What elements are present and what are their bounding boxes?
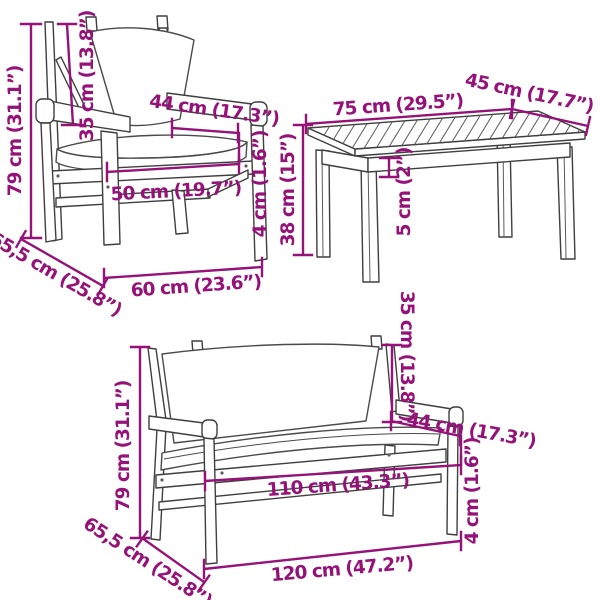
bench-screw bbox=[387, 453, 390, 456]
armchair-drawing bbox=[36, 16, 267, 261]
diagram-canvas: 79 cm (31.1”) 35 cm (13.8”) 44 cm (17.3”… bbox=[0, 0, 600, 600]
coffee-table-drawing bbox=[308, 106, 594, 282]
bench-width-dimension: 120 cm (47.2”) bbox=[204, 532, 461, 586]
bench-cushion-thickness-dimension: 4 cm (1.6”) bbox=[461, 436, 483, 544]
dimension-label: 50 cm (19.7”) bbox=[110, 178, 242, 206]
dimension-label: 75 cm (29.5”) bbox=[332, 90, 464, 120]
chair-screw bbox=[56, 174, 59, 177]
dimension-label: 44 cm (17.3”) bbox=[148, 91, 280, 130]
dimension-label: 35 cm (13.8”) bbox=[396, 291, 417, 422]
bench-armrest-left-cap bbox=[202, 420, 217, 439]
dimension-label: 38 cm (15”) bbox=[278, 134, 299, 247]
bench-screw bbox=[220, 471, 223, 474]
dimension-diagram: 79 cm (31.1”) 35 cm (13.8”) 44 cm (17.3”… bbox=[0, 0, 600, 600]
dimension-label: 5 cm (2”) bbox=[394, 148, 415, 237]
bench-height-dimension: 79 cm (31.1”) bbox=[113, 347, 149, 538]
chair-screw bbox=[106, 185, 109, 188]
dimension-label: 4 cm (1.6”) bbox=[250, 131, 271, 238]
chair-armrest-left-cap bbox=[36, 99, 54, 123]
dimension-label: 79 cm (31.1”) bbox=[5, 66, 26, 197]
bench-screw bbox=[160, 478, 163, 481]
bench-front-leg-right bbox=[447, 426, 458, 535]
dimension-label: 35 cm (13.8”) bbox=[77, 11, 98, 142]
table-height-dimension: 38 cm (15”) bbox=[278, 125, 312, 255]
dimension-label: 79 cm (31.1”) bbox=[113, 381, 134, 512]
armchair-height-dimension: 79 cm (31.1”) bbox=[5, 24, 41, 238]
chair-screw bbox=[244, 164, 247, 167]
bench-depth-dimension: 65,5 cm (25.8”) bbox=[79, 513, 215, 600]
dimension-label: 4 cm (1.6”) bbox=[462, 438, 483, 545]
dimension-label: 65,5 cm (25.8”) bbox=[79, 513, 215, 600]
armchair-width-dimension: 60 cm (23.6”) bbox=[104, 258, 262, 302]
bench-front-leg-left bbox=[204, 438, 217, 564]
dimension-label: 120 cm (47.2”) bbox=[270, 553, 414, 586]
